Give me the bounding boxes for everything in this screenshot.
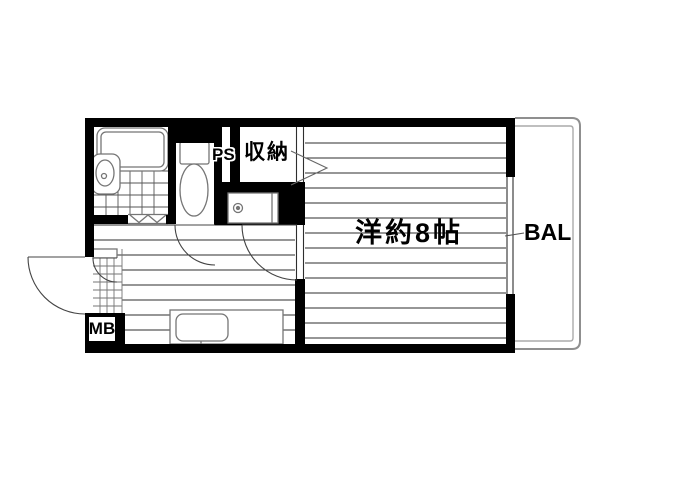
wall-toilet-header	[168, 118, 214, 143]
entrance-door	[28, 257, 85, 314]
main-room-label: 洋約8帖	[341, 220, 477, 247]
shoe-cabinet	[93, 249, 117, 258]
toilet-door	[175, 225, 215, 265]
washing-machine-space	[228, 193, 278, 223]
wall-right-upper	[506, 118, 515, 177]
wall-divider-lower	[295, 279, 305, 344]
wall-left	[85, 118, 94, 257]
balcony-label: BAL	[524, 221, 571, 244]
bifold-bath-door	[128, 215, 168, 224]
toilet-tank	[180, 142, 209, 164]
meter-box-label: MB	[89, 317, 115, 341]
floor-plan: 洋約8帖 BAL 収納 PS MB	[0, 0, 700, 490]
washbasin-drain	[102, 174, 107, 179]
entrance-tile-area	[93, 258, 122, 316]
washbasin-bowl	[96, 160, 114, 186]
wall-bifold-stub	[166, 215, 176, 224]
wall-bottom	[85, 344, 515, 353]
kitchen-sink	[176, 314, 228, 341]
pipe-space-label: PS	[212, 146, 235, 163]
wall-bath-bottom	[85, 215, 128, 224]
main-room-door	[242, 225, 297, 280]
balcony-leader-line	[505, 233, 524, 236]
toilet-bowl	[180, 164, 208, 216]
wall-right-lower	[506, 294, 515, 353]
storage-label: 収納	[238, 142, 296, 163]
washing-machine-drain-dot	[237, 207, 240, 210]
wall-top	[85, 118, 515, 127]
